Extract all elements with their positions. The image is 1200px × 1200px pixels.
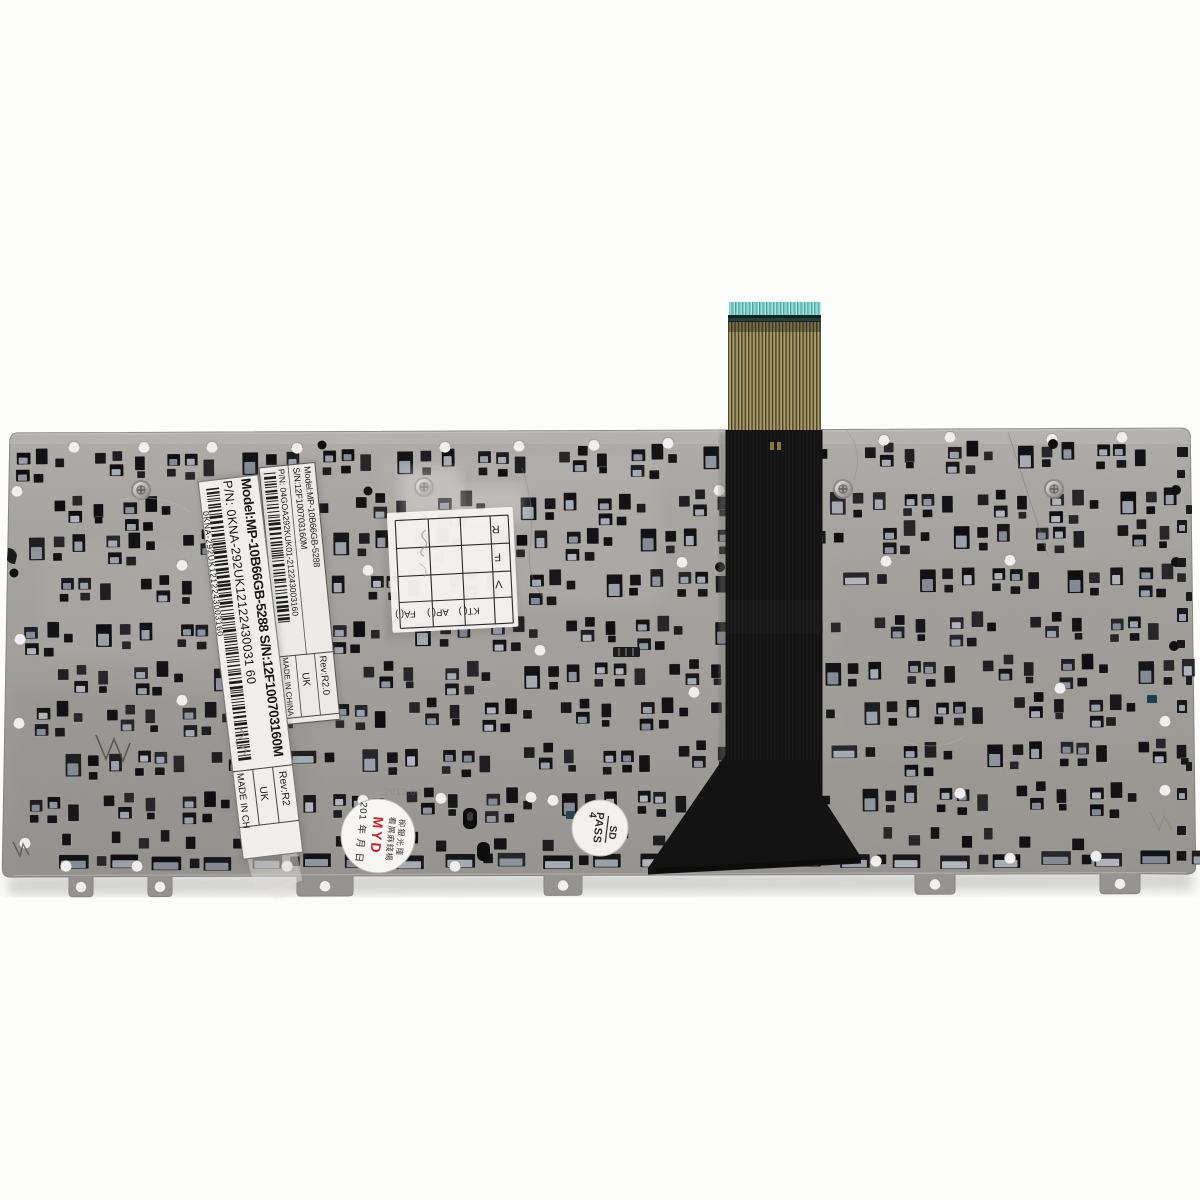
svg-text:SD: SD [606, 825, 619, 840]
svg-text:2012.04: 2012.04 [384, 787, 422, 798]
svg-text:FA( ): FA( ) [395, 608, 416, 620]
svg-text:F: F [494, 550, 502, 562]
svg-text:R: R [491, 523, 500, 535]
svg-text:KT( ): KT( ) [458, 605, 480, 617]
svg-text:UK: UK [257, 786, 271, 802]
svg-text:AP( ): AP( ) [427, 606, 449, 618]
svg-text:UK: UK [299, 672, 311, 687]
svg-text:V: V [494, 577, 503, 589]
svg-text:MYD: MYD [367, 816, 386, 856]
